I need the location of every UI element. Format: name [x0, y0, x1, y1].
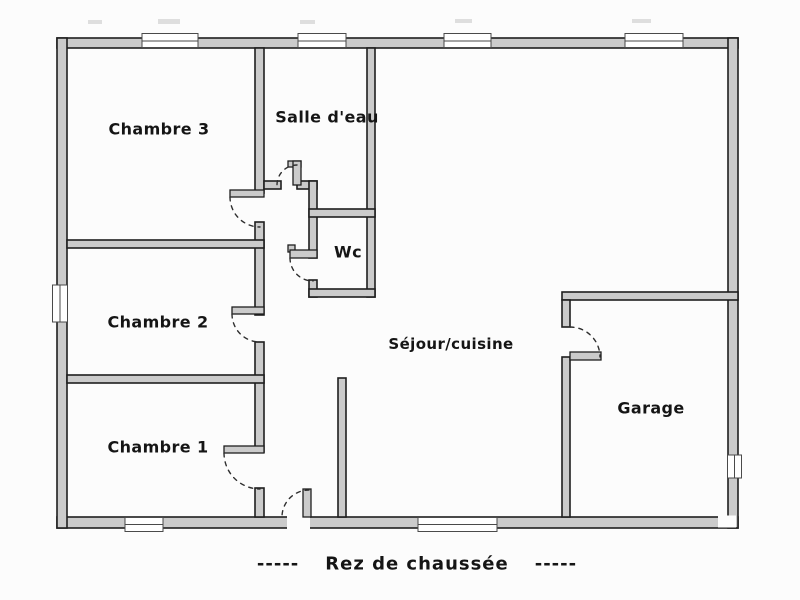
chambre1-door-leaf — [224, 446, 264, 453]
room-label-salle-deau: Salle d'eau — [275, 108, 379, 127]
scan-smudge — [300, 20, 315, 24]
floor-plan: Chambre 3 Salle d'eau Wc Chambre 2 Chamb… — [0, 0, 800, 600]
wall-wc-bottom — [309, 289, 375, 297]
floor-plan-drawing — [0, 0, 800, 600]
room-label-sejour-cuisine: Séjour/cuisine — [388, 335, 513, 353]
wall-corridor-mid1 — [255, 222, 264, 315]
chambre2-door-arc — [232, 314, 260, 342]
caption-text: Rez de chaussée — [325, 554, 508, 575]
entry-door-leaf — [303, 489, 311, 517]
wall-salledeau-sejour — [367, 48, 375, 297]
wall-wc-top — [309, 209, 375, 217]
scan-smudge — [632, 19, 651, 23]
wc-door-arc — [290, 258, 313, 281]
wall-chambre3-chambre2 — [67, 240, 264, 248]
room-label-chambre-1: Chambre 1 — [107, 438, 208, 457]
wall-garage-left-upper — [562, 300, 570, 327]
scan-smudge — [158, 19, 180, 24]
chambre3-door-leaf — [230, 190, 264, 197]
garage-corner-patch — [718, 516, 736, 528]
room-label-garage: Garage — [617, 399, 684, 418]
wc-door-leaf — [290, 250, 317, 258]
wall-exterior-left — [57, 38, 67, 528]
wall-corridor-upper — [255, 48, 264, 193]
caption: ----- Rez de chaussée ----- — [257, 554, 577, 575]
wall-corridor-lower — [255, 488, 264, 517]
caption-dashes-left: ----- — [257, 554, 299, 575]
garage-door-leaf — [570, 352, 601, 360]
room-label-chambre-3: Chambre 3 — [108, 120, 209, 139]
room-label-wc: Wc — [334, 243, 362, 262]
wall-salledeau-bottom-left — [264, 181, 281, 189]
wall-wc-left-upper — [309, 181, 317, 258]
scan-smudge — [88, 20, 102, 24]
scan-smudge — [455, 19, 472, 23]
caption-dashes-right: ----- — [535, 554, 577, 575]
wall-garage-left-lower — [562, 357, 570, 517]
entry-door-opening — [287, 516, 310, 531]
room-label-chambre-2: Chambre 2 — [107, 313, 208, 332]
wall-corridor-mid2 — [255, 342, 264, 452]
wall-chambre2-chambre1 — [67, 375, 264, 383]
chambre1-door-arc — [224, 453, 260, 489]
wall-garage-top — [562, 292, 738, 300]
wall-hallway-sejour — [338, 378, 346, 517]
chambre2-door-leaf — [232, 307, 264, 314]
